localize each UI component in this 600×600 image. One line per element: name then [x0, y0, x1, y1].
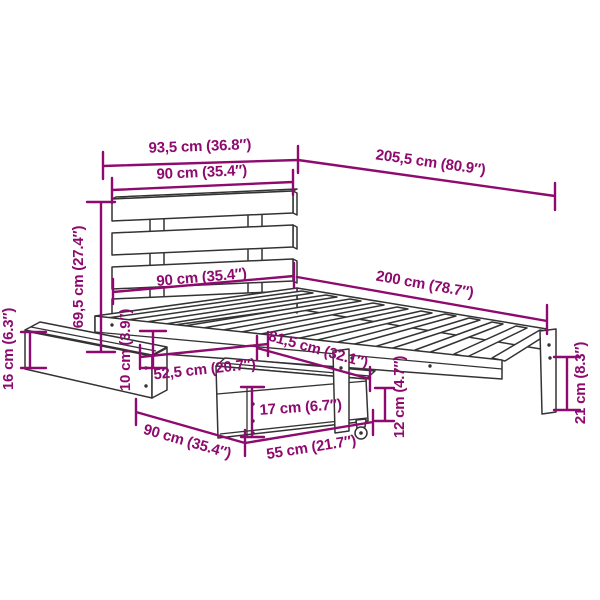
dim-leg-height: 21 cm (8.3″) [554, 342, 589, 425]
dim-label-headboard-height: 69,5 cm (27.4″) [70, 226, 87, 329]
dim-label-rail-height: 10 cm (3.9″) [117, 309, 134, 392]
diagram-canvas: 93,5 cm (36.8″) 205,5 cm (80.9″) 90 cm (… [0, 0, 600, 600]
dimension-diagram: 93,5 cm (36.8″) 205,5 cm (80.9″) 90 cm (… [0, 0, 600, 600]
foot-leg [540, 329, 556, 414]
dim-label-left-drawer-height: 16 cm (6.3″) [0, 308, 17, 391]
dim-label-headboard-total-width: 93,5 cm (36.8″) [148, 136, 251, 157]
dim-label-caster-height: 12 cm (4.7″) [391, 356, 408, 439]
caster-wheel [355, 419, 367, 439]
dim-label-bed-length: 200 cm (78.7″) [375, 268, 475, 302]
dim-total-length: 205,5 cm (80.9″) [298, 146, 555, 210]
dim-label-leg-height: 21 cm (8.3″) [572, 342, 589, 425]
dim-label-headboard-width: 90 cm (35.4″) [156, 162, 247, 183]
